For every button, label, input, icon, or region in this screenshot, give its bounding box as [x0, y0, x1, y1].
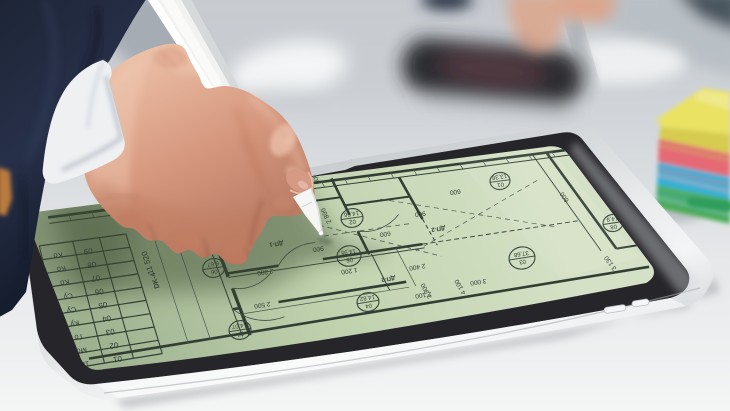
- svg-text:Ky: Ky: [70, 318, 80, 328]
- svg-text:Cy: Cy: [63, 291, 74, 301]
- svg-text:Го: Го: [74, 332, 83, 342]
- svg-text:Cy: Cy: [66, 305, 77, 315]
